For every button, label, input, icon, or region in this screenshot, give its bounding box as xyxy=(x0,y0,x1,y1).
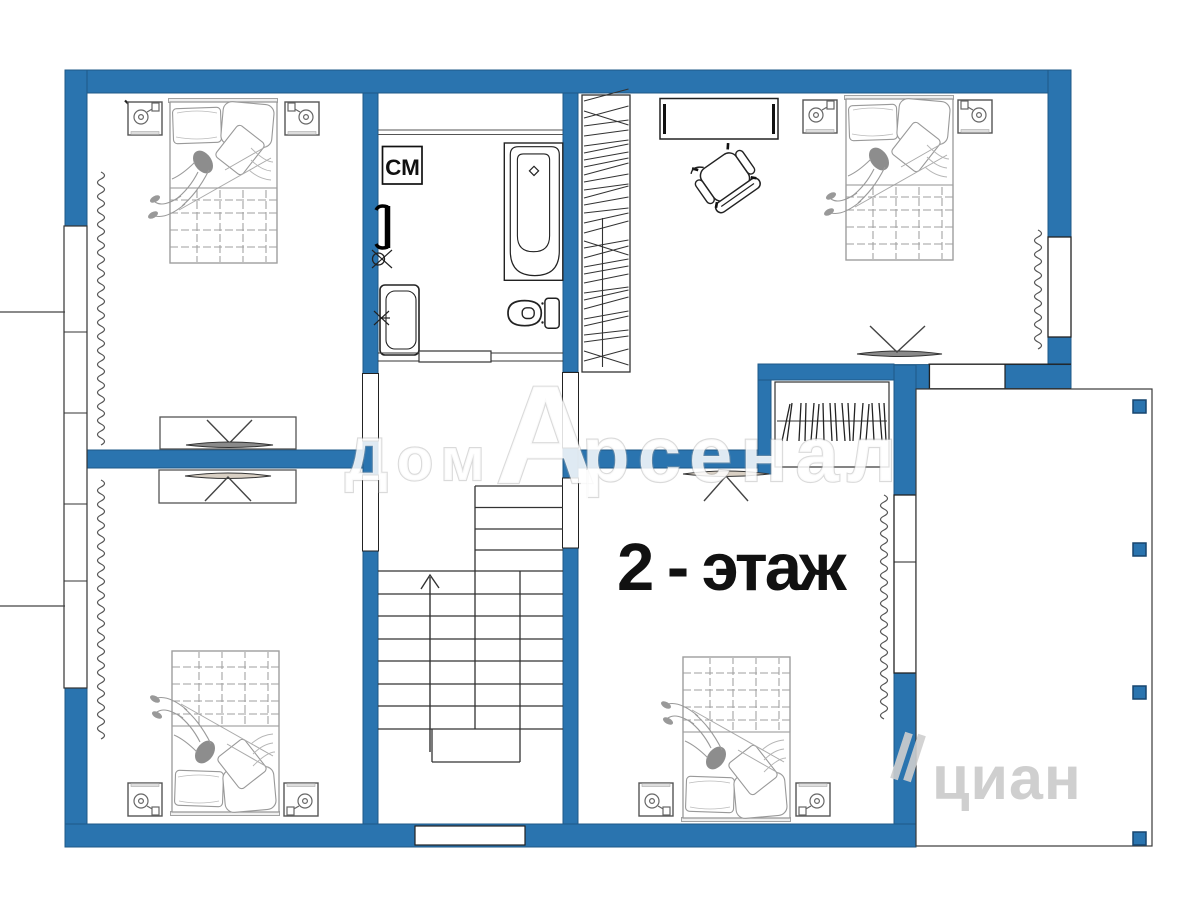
svg-text:А: А xyxy=(495,356,596,513)
svg-text:рсенал: рсенал xyxy=(582,410,904,498)
svg-text:СМ: СМ xyxy=(385,155,420,180)
svg-text:циан: циан xyxy=(932,744,1082,812)
svg-text:Дом: Дом xyxy=(345,426,493,493)
svg-text:2 - этаж: 2 - этаж xyxy=(617,530,848,605)
